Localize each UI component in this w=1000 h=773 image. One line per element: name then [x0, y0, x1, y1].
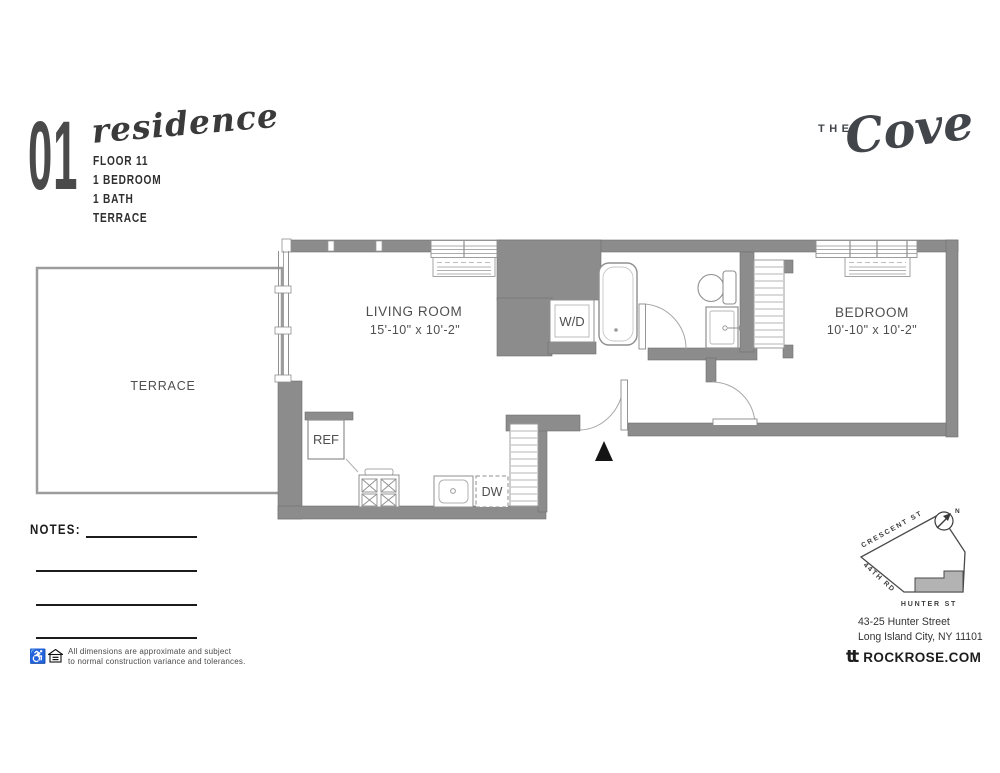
corner-window-post [282, 239, 291, 252]
notes-line [36, 604, 197, 606]
entry-door [580, 380, 628, 430]
notes-line [36, 637, 197, 639]
rockrose-logo-icon: tt [846, 647, 856, 667]
address-line2: Long Island City, NY 11101 [858, 630, 983, 645]
accessibility-icon: ♿ [29, 648, 46, 665]
toilet [698, 271, 736, 304]
ref-wall-stub [305, 412, 353, 420]
kitchen-east-wall [538, 424, 547, 512]
disclaimer-text: All dimensions are approximate and subje… [68, 647, 246, 667]
wd-west-wall [497, 298, 552, 356]
bedroom-label: BEDROOM [835, 305, 909, 320]
bedroom-dims: 10'-10" x 10'-2" [827, 323, 917, 337]
wall-notch [376, 241, 382, 251]
kitchen-west-wall [278, 381, 302, 519]
wd-closet: W/D [550, 300, 594, 342]
notes-label: NOTES: [30, 521, 81, 537]
address-block: 43-25 Hunter Street Long Island City, NY… [858, 615, 983, 645]
bedroom-door [712, 382, 757, 426]
refrigerator: REF [308, 420, 358, 472]
kitchen-closet-shelves [510, 424, 538, 506]
terrace-label: TERRACE [130, 379, 195, 393]
bedroom-south-wall [628, 423, 946, 436]
address-line1: 43-25 Hunter Street [858, 615, 983, 630]
equal-housing-icon [48, 649, 63, 663]
street-label-hunter: HUNTER ST [901, 601, 957, 608]
east-wall [946, 240, 958, 437]
wall-notch [328, 241, 334, 251]
hvac-unit-living [433, 258, 495, 277]
living-room-window [431, 241, 497, 258]
notes-line [86, 536, 197, 538]
wd-south-wall [548, 342, 596, 354]
terrace-area: TERRACE [37, 268, 282, 493]
dishwasher: DW [476, 476, 508, 507]
living-room-dims: 15'-10" x 10'-2" [370, 323, 460, 337]
website-row: tt ROCKROSE.COM [846, 647, 981, 667]
core-wall-block [497, 240, 601, 300]
hvac-unit-bedroom [845, 258, 910, 277]
kitchen-south-wall [278, 506, 546, 519]
stove [359, 469, 399, 507]
website-link: ROCKROSE.COM [863, 650, 981, 665]
notes-line [36, 570, 197, 572]
disclaimer-line1: All dimensions are approximate and subje… [68, 647, 246, 657]
wd-label: W/D [559, 314, 584, 329]
floorplan-page: 01 residence FLOOR 11 1 BEDROOM 1 BATH T… [0, 0, 1000, 773]
dw-label: DW [482, 485, 503, 499]
bathtub [599, 263, 637, 345]
hall-stub-wall [706, 358, 716, 382]
bedroom-closet-shelves [754, 260, 784, 348]
bath-east-wall [740, 252, 754, 352]
living-room-label: LIVING ROOM [366, 304, 463, 319]
site-map: N CRESCENT ST 44TH RD HUNTER ST [860, 508, 965, 608]
disclaimer-line2: to normal construction variance and tole… [68, 657, 246, 667]
north-arrow-icon: N [935, 508, 960, 530]
entry-marker-triangle [595, 441, 613, 461]
bedroom-window [816, 241, 917, 258]
ref-label: REF [313, 432, 339, 447]
bathroom-door [639, 304, 686, 349]
bathroom-sink [706, 307, 744, 348]
kitchen-sink [434, 476, 473, 507]
north-label: N [955, 508, 960, 515]
